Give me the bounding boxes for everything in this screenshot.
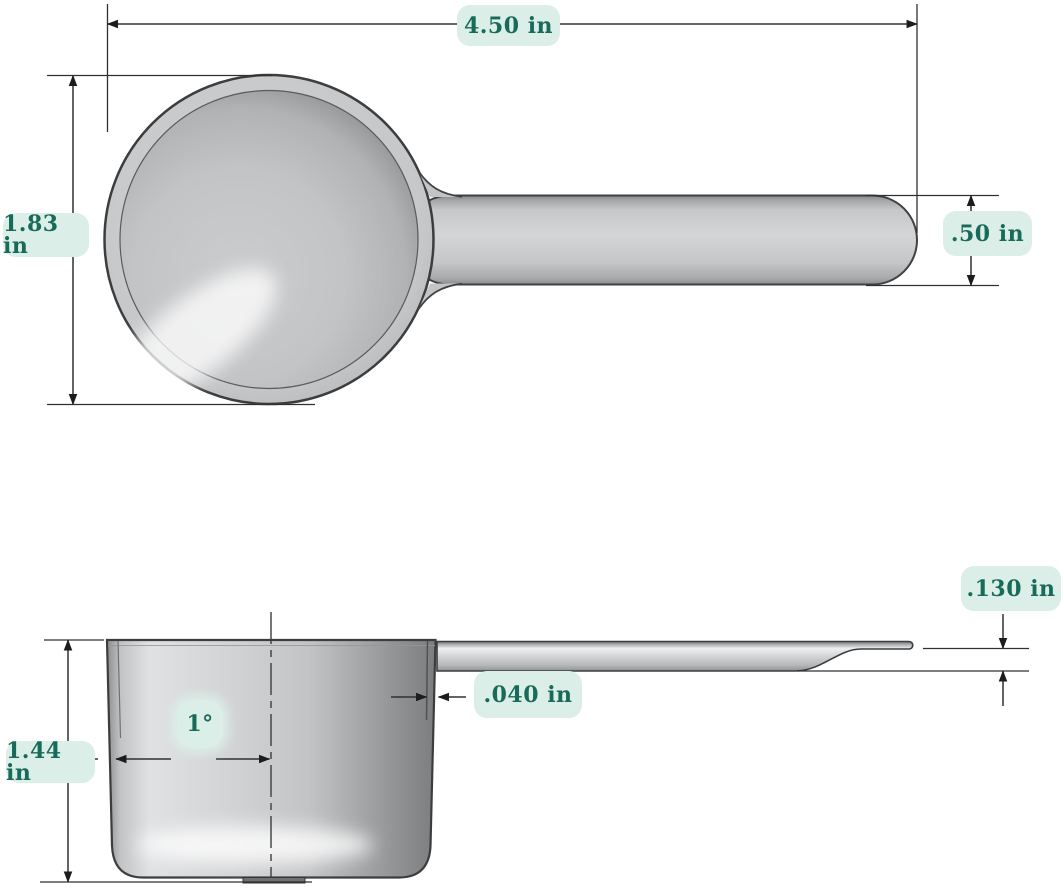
dimension-label-bowl-height: 1.44 in [6,741,95,783]
dimension-label-handle-thickness: .130 in [961,566,1061,611]
dimension-label-bowl-diameter: 1.83 in [3,213,89,257]
dimension-label-draft-angle: 1° [177,700,223,748]
cup-bottom-highlight [137,826,373,864]
drawing-linework [0,0,1063,891]
dimension-label-handle-width: .50 in [943,211,1032,256]
dimension-label-overall-length: 4.50 in [457,5,560,46]
scoop-handle-side-view [437,642,913,672]
side-view [107,612,913,883]
cup-right-wall-inner-line [427,641,428,720]
scoop-handle-top-view [405,196,917,285]
dimension-label-wall-thickness: .040 in [474,671,582,718]
scoop-dimension-drawing: 4.50 in 1.83 in .50 in .130 in .040 in 1… [0,0,1063,891]
top-view [95,75,917,426]
